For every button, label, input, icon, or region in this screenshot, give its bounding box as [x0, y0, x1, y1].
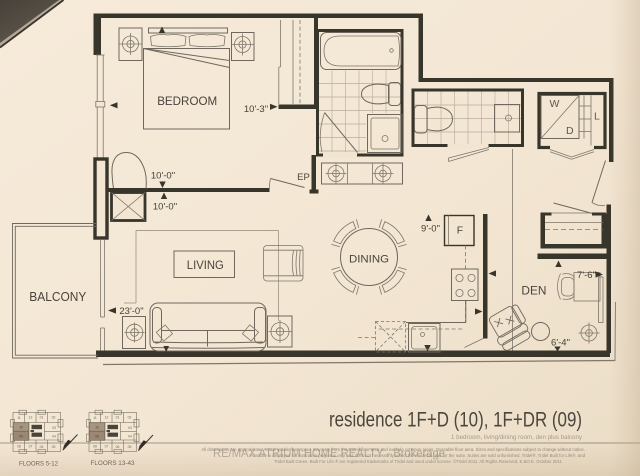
svg-text:BEDROOM: BEDROOM: [157, 94, 217, 108]
svg-text:1 bedroom, living/dining room,: 1 bedroom, living/dining room, den plus …: [451, 434, 583, 441]
svg-text:L: L: [594, 111, 600, 123]
svg-text:6'-4": 6'-4": [551, 338, 570, 349]
svg-text:LIVING: LIVING: [187, 258, 224, 272]
svg-text:9'-0": 9'-0": [421, 224, 440, 235]
svg-text:23'-0": 23'-0": [119, 306, 143, 317]
svg-text:BALCONY: BALCONY: [29, 290, 87, 304]
svg-text:10'-0": 10'-0": [153, 202, 177, 213]
svg-text:W: W: [550, 98, 560, 110]
svg-text:DINING: DINING: [349, 254, 389, 266]
svg-text:EP: EP: [297, 172, 310, 183]
svg-text:D: D: [566, 125, 574, 137]
svg-text:10'-3": 10'-3": [244, 104, 268, 115]
svg-text:F: F: [457, 225, 463, 237]
svg-text:DEN: DEN: [521, 284, 546, 298]
svg-text:7'-6": 7'-6": [577, 270, 596, 281]
svg-text:10'-0": 10'-0": [151, 171, 175, 182]
svg-text:residence 1F+D (10), 1F+DR (09: residence 1F+D (10), 1F+DR (09): [329, 408, 582, 432]
